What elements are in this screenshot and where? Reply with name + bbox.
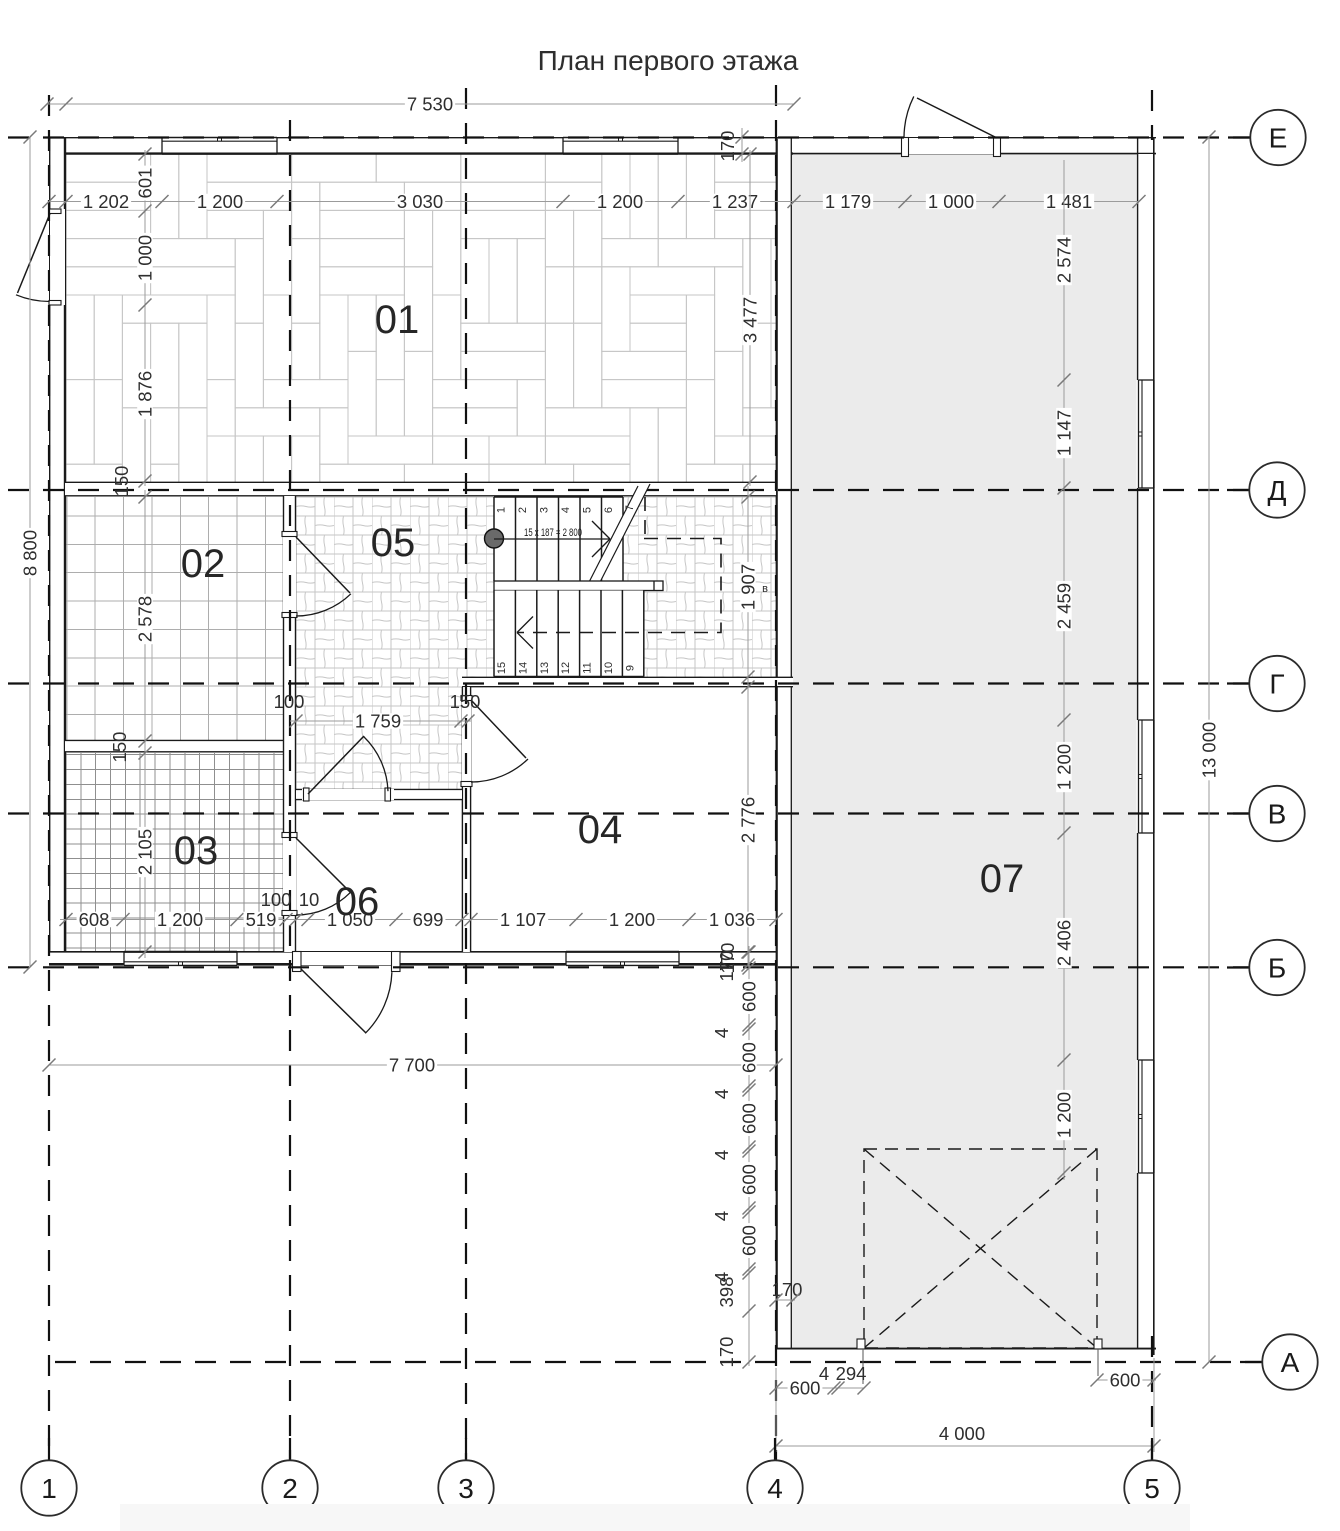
svg-text:519: 519 [246,909,277,930]
svg-text:4: 4 [711,1089,732,1099]
svg-text:1 000: 1 000 [135,235,156,281]
svg-text:699: 699 [413,909,444,930]
svg-text:150: 150 [109,732,130,763]
svg-text:150: 150 [450,691,481,712]
svg-text:7 700: 7 700 [389,1055,435,1076]
svg-text:5: 5 [1144,1473,1160,1504]
svg-text:2 578: 2 578 [135,596,156,642]
svg-text:600: 600 [790,1378,821,1399]
svg-text:170: 170 [716,1337,737,1368]
svg-text:170: 170 [772,1279,803,1300]
svg-text:601: 601 [135,168,156,199]
svg-text:2 459: 2 459 [1054,583,1075,629]
svg-text:1 179: 1 179 [825,191,871,212]
svg-text:2: 2 [282,1473,298,1504]
svg-text:1 200: 1 200 [597,191,643,212]
svg-text:02: 02 [181,542,226,586]
svg-text:1 200: 1 200 [1054,744,1075,790]
svg-text:Д: Д [1268,475,1287,506]
svg-text:170: 170 [716,951,737,982]
svg-text:1 876: 1 876 [135,371,156,417]
svg-text:4: 4 [711,1211,732,1221]
svg-text:3 030: 3 030 [397,191,443,212]
svg-text:5: 5 [582,507,594,513]
svg-text:1 000: 1 000 [928,191,974,212]
svg-text:3: 3 [458,1473,474,1504]
svg-text:2: 2 [517,507,529,513]
svg-text:600: 600 [739,1042,760,1073]
svg-text:15: 15 [496,662,508,674]
svg-text:3: 3 [539,507,551,513]
svg-text:7 530: 7 530 [407,94,453,115]
svg-text:Е: Е [1269,123,1288,154]
svg-text:2 105: 2 105 [135,829,156,875]
svg-text:1 200: 1 200 [1054,1092,1075,1138]
svg-text:600: 600 [739,1164,760,1195]
svg-text:4: 4 [711,1028,732,1038]
svg-text:2 574: 2 574 [1054,237,1075,283]
svg-text:1 200: 1 200 [197,191,243,212]
svg-text:1 147: 1 147 [1054,410,1075,456]
svg-text:1 200: 1 200 [609,909,655,930]
svg-text:600: 600 [1110,1370,1141,1391]
svg-text:6: 6 [603,507,615,513]
svg-text:01: 01 [375,298,420,342]
svg-text:100: 100 [261,889,292,910]
svg-text:600: 600 [739,981,760,1012]
svg-text:4: 4 [560,507,572,513]
svg-text:600: 600 [739,1225,760,1256]
svg-text:1 036: 1 036 [709,909,755,930]
svg-text:608: 608 [79,909,110,930]
svg-text:398: 398 [716,1277,737,1308]
svg-text:10: 10 [603,662,615,674]
svg-text:Б: Б [1268,953,1286,984]
svg-text:294: 294 [836,1363,867,1384]
svg-text:4: 4 [711,1150,732,1160]
svg-text:2 776: 2 776 [738,797,759,843]
svg-text:10: 10 [299,889,320,910]
svg-text:1 759: 1 759 [355,711,401,732]
svg-text:1 907: 1 907 [738,564,759,610]
svg-text:100: 100 [274,691,305,712]
svg-text:1 202: 1 202 [83,191,129,212]
svg-text:1 200: 1 200 [157,909,203,930]
svg-text:1 107: 1 107 [500,909,546,930]
svg-text:1 481: 1 481 [1046,191,1092,212]
svg-text:13 000: 13 000 [1199,722,1220,779]
svg-text:1: 1 [496,507,508,513]
svg-text:14: 14 [517,662,529,674]
svg-text:2 406: 2 406 [1054,920,1075,966]
svg-text:06: 06 [335,880,380,924]
svg-text:150: 150 [111,466,132,497]
svg-text:1 237: 1 237 [712,191,758,212]
svg-text:07: 07 [980,857,1025,901]
svg-text:13: 13 [539,662,551,674]
svg-text:в: в [762,583,768,595]
svg-text:05: 05 [371,521,416,565]
svg-text:15 x 187 = 2 800: 15 x 187 = 2 800 [524,527,582,539]
svg-text:03: 03 [174,829,219,873]
svg-text:План первого этажа: План первого этажа [538,45,799,76]
svg-text:12: 12 [560,662,572,674]
svg-text:170: 170 [717,131,738,162]
svg-text:9: 9 [624,665,636,671]
svg-text:1: 1 [41,1473,57,1504]
svg-text:8 800: 8 800 [20,530,41,576]
svg-text:04: 04 [578,808,623,852]
svg-text:В: В [1268,799,1287,830]
svg-text:Г: Г [1269,669,1284,700]
svg-text:7: 7 [624,505,636,511]
svg-text:4 000: 4 000 [939,1423,985,1444]
svg-text:3 477: 3 477 [740,297,761,343]
svg-text:А: А [1281,1347,1300,1378]
svg-text:4: 4 [767,1473,783,1504]
svg-text:600: 600 [739,1103,760,1134]
svg-text:11: 11 [582,662,594,673]
